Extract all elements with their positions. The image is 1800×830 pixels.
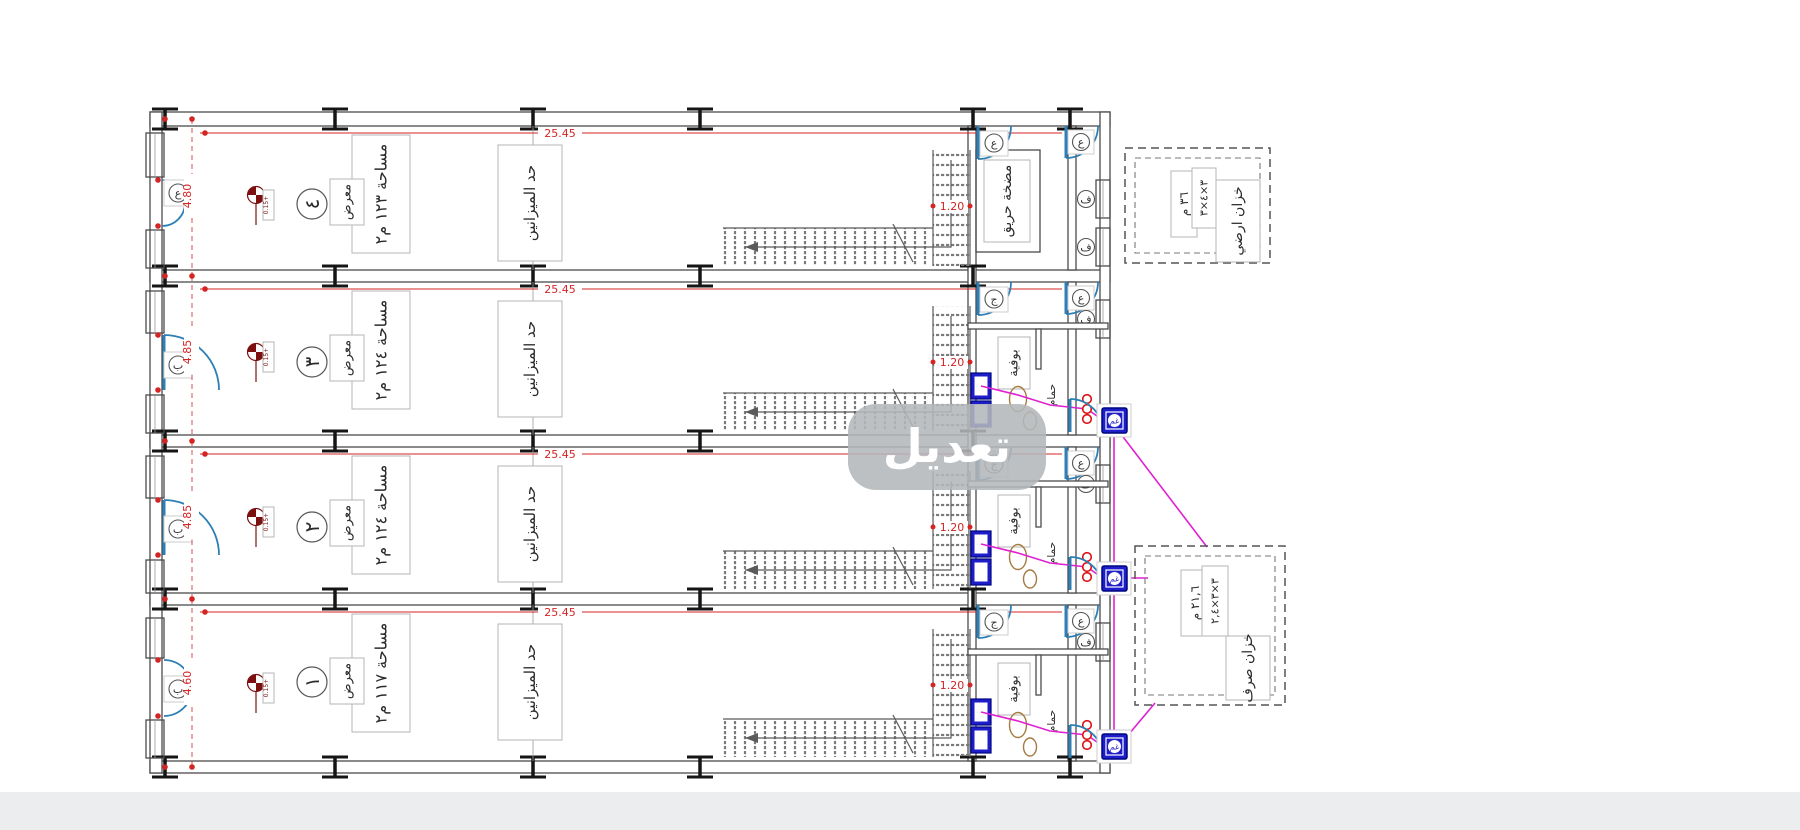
unit-1-group: ب 4.60 0.15+ ١ مساحة ١١٧ م٢ معرض حد المي…	[146, 596, 1110, 770]
watermark: تعديل	[848, 404, 1046, 490]
sewage-tank: ٢١,٦ م ٣×٣×٢,٤ خزان صرف	[1135, 546, 1285, 705]
unit-number: ٣	[297, 347, 327, 377]
ground-tank-dims: ٣×٤×٣	[1198, 180, 1211, 216]
window-tag: ف	[1078, 239, 1095, 256]
use-label: معرض	[340, 184, 355, 220]
svg-text:ع: ع	[1078, 615, 1085, 628]
unit-number: ٢	[297, 512, 327, 542]
use-label: معرض	[340, 340, 355, 376]
svg-text:0.15+: 0.15+	[263, 196, 270, 214]
basin-fixture	[1010, 713, 1027, 738]
bath-label: حمام	[1046, 542, 1058, 564]
door-tag: ع	[980, 131, 1008, 156]
svg-text:ف: ف	[1080, 193, 1091, 206]
area-label: مساحة ١١٧ م٢	[372, 623, 391, 724]
unit-width-dim: 4.85	[181, 505, 194, 530]
door-tag: ج	[980, 610, 1008, 635]
level-tag: 0.15+	[263, 342, 274, 372]
door-tag: ج	[980, 287, 1008, 312]
mezzanine-label: حد الميزانين	[521, 486, 539, 562]
level-marker	[248, 344, 265, 383]
svg-text:غم: غم	[1110, 743, 1120, 752]
svg-text:غم: غم	[1110, 417, 1120, 426]
door-tag: ع	[1068, 286, 1094, 310]
svg-text:ج: ج	[990, 616, 998, 629]
stair-dim: 1.20	[940, 200, 965, 213]
mezzanine-label: حد الميزانين	[521, 165, 539, 241]
mezzanine-label: حد الميزانين	[521, 644, 539, 720]
ground-tank-name: خزان ارضي	[1230, 186, 1246, 255]
manhole: غم	[1097, 562, 1131, 595]
level-marker	[248, 509, 265, 548]
length-dim: 25.45	[544, 606, 576, 619]
floor-plan-page: ع 4.80 0.15+ ٤ مساحة ١٢٣ م٢ معرض حد المي…	[0, 0, 1800, 830]
length-dim: 25.45	[544, 283, 576, 296]
page-bottom-band	[0, 792, 1800, 830]
unit-width-dim: 4.60	[181, 671, 194, 696]
door-tag: ع	[1068, 609, 1094, 633]
svg-text:ع: ع	[1078, 292, 1085, 305]
ground-tank-volume: ٣٦ م	[1177, 192, 1191, 216]
svg-text:0.15+: 0.15+	[263, 348, 270, 366]
svg-text:0.15+: 0.15+	[263, 513, 270, 531]
svg-text:٤: ٤	[300, 199, 324, 210]
staircase	[723, 629, 970, 757]
unit-number: ٤	[297, 189, 327, 219]
use-label: معرض	[340, 505, 355, 541]
svg-text:٣: ٣	[300, 356, 324, 367]
door-tag: ع	[1068, 451, 1094, 475]
svg-text:ف: ف	[1080, 241, 1091, 254]
buffet-bath-block: بوفية حمام	[968, 481, 1108, 590]
svg-text:١: ١	[300, 677, 324, 688]
svg-text:٢: ٢	[300, 522, 324, 533]
use-label: معرض	[340, 663, 355, 699]
bath-label: حمام	[1046, 384, 1058, 406]
sewage-tank-dims: ٣×٣×٢,٤	[1209, 578, 1222, 624]
level-marker	[248, 675, 265, 714]
basin-fixture	[1010, 545, 1027, 570]
manhole: غم	[1097, 404, 1131, 437]
floor-plan-drawing: ع 4.80 0.15+ ٤ مساحة ١٢٣ م٢ معرض حد المي…	[0, 0, 1800, 830]
area-label: مساحة ١٢٤ م٢	[372, 300, 391, 401]
length-dim: 25.45	[544, 127, 576, 140]
svg-text:ف: ف	[1080, 636, 1091, 649]
window-tag: ف	[1078, 191, 1095, 208]
window-tag: ف	[1078, 634, 1095, 651]
unit-4-group: ع 4.80 0.15+ ٤ مساحة ١٢٣ م٢ معرض حد المي…	[146, 116, 1110, 276]
svg-text:ع: ع	[1078, 136, 1085, 149]
mezzanine-label: حد الميزانين	[521, 321, 539, 397]
door-tag: ع	[1068, 130, 1094, 154]
bath-label: حمام	[1046, 710, 1058, 732]
buffet-label: بوفية	[1007, 507, 1022, 534]
watermark-text: تعديل	[883, 419, 1011, 473]
sewage-tank-name: خزان صرف	[1240, 633, 1256, 702]
area-label: مساحة ١٢٣ م٢	[372, 144, 391, 245]
level-tag: 0.15+	[263, 190, 274, 220]
pump-room-label: مضخة حريق	[999, 165, 1015, 238]
buffet-label: بوفية	[1007, 349, 1022, 376]
sewage-tank-volume: ٢١,٦ م	[1188, 586, 1202, 620]
stair-dim: 1.20	[940, 521, 965, 534]
toilet-fixture	[1024, 570, 1037, 588]
level-marker	[248, 187, 265, 226]
unit-number: ١	[297, 667, 327, 697]
buffet-label: بوفية	[1007, 675, 1022, 702]
unit-width-dim: 4.85	[181, 340, 194, 365]
area-label: مساحة ١٢٤ م٢	[372, 465, 391, 566]
svg-text:ع: ع	[1078, 457, 1085, 470]
toilet-fixture	[1024, 738, 1037, 756]
buffet-bath-block: بوفية حمام	[968, 649, 1108, 758]
stair-dim: 1.20	[940, 679, 965, 692]
svg-text:0.15+: 0.15+	[263, 679, 270, 697]
manhole: غم	[1097, 730, 1131, 763]
level-tag: 0.15+	[263, 673, 274, 703]
level-tag: 0.15+	[263, 507, 274, 537]
ground-tank: ٣٦ م ٣×٤×٣ خزان ارضي	[1125, 148, 1270, 263]
svg-text:غم: غم	[1110, 575, 1120, 584]
length-dim: 25.45	[544, 448, 576, 461]
svg-text:ع: ع	[991, 137, 998, 150]
svg-text:ج: ج	[990, 293, 998, 306]
unit-width-dim: 4.80	[181, 184, 194, 209]
stair-dim: 1.20	[940, 356, 965, 369]
